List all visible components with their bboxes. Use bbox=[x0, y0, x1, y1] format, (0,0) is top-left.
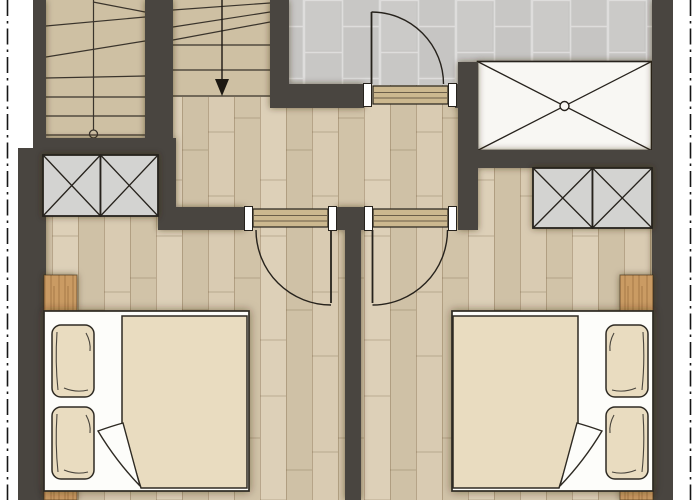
wall-left-upper bbox=[33, 0, 46, 150]
wall-hall-east bbox=[458, 62, 478, 230]
door-threshold bbox=[373, 209, 448, 227]
floor-plan bbox=[0, 0, 700, 500]
door-jamb bbox=[449, 84, 457, 107]
wall-right bbox=[652, 0, 673, 500]
wall-above-wardrobe-left bbox=[33, 138, 160, 156]
stair-flight-left bbox=[46, 0, 145, 138]
door-threshold bbox=[373, 86, 448, 104]
bed-left bbox=[44, 311, 249, 491]
margin-left-upper bbox=[0, 0, 33, 148]
door-threshold bbox=[253, 209, 328, 227]
wall-bedroom-partition bbox=[345, 228, 361, 500]
wall-hall-bedroom-left bbox=[158, 207, 245, 230]
duvet bbox=[453, 316, 578, 488]
door-jamb bbox=[449, 207, 457, 231]
shower-drain-icon bbox=[560, 102, 569, 111]
floor-plan-drawing bbox=[0, 0, 700, 500]
margin-right bbox=[673, 0, 700, 500]
nightstand-top-left bbox=[44, 275, 77, 311]
wall-left-lower bbox=[18, 148, 46, 500]
shower-tray bbox=[478, 62, 652, 151]
wall-stair-spine bbox=[145, 0, 173, 142]
door-jamb bbox=[329, 207, 337, 231]
duvet bbox=[122, 316, 247, 488]
wardrobe-right bbox=[533, 168, 652, 228]
door-jamb bbox=[365, 207, 373, 231]
bed-right bbox=[452, 311, 653, 491]
wall-bathroom-bottom bbox=[270, 84, 364, 108]
wall-between-doors bbox=[336, 207, 366, 230]
wardrobe-left bbox=[43, 155, 158, 216]
nightstand-top-right bbox=[620, 275, 653, 311]
door-jamb bbox=[364, 84, 372, 107]
door-jamb bbox=[245, 207, 253, 231]
wall-below-shower bbox=[458, 150, 653, 168]
